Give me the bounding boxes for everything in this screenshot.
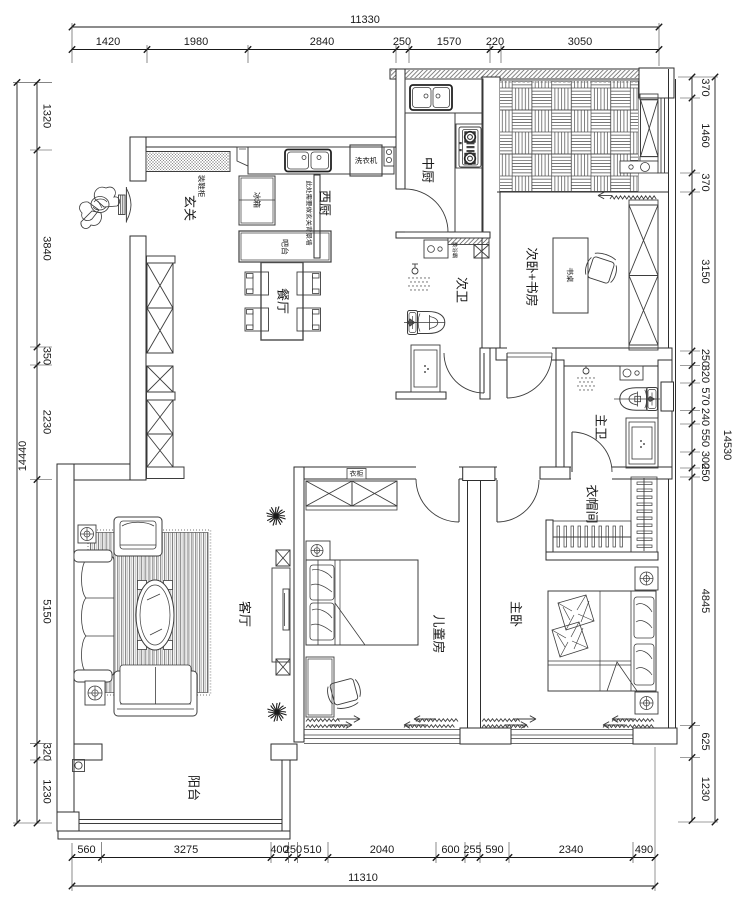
svg-text:14530: 14530 xyxy=(721,430,733,461)
svg-text:590: 590 xyxy=(485,844,503,856)
svg-text:250: 250 xyxy=(284,844,302,856)
svg-text:1980: 1980 xyxy=(184,36,208,48)
svg-text:255: 255 xyxy=(463,844,481,856)
svg-text:370: 370 xyxy=(699,78,711,96)
svg-text:370: 370 xyxy=(699,173,711,191)
svg-text:1460: 1460 xyxy=(699,123,711,147)
svg-text:220: 220 xyxy=(486,36,504,48)
svg-text:14440: 14440 xyxy=(17,441,29,472)
svg-text:1230: 1230 xyxy=(41,779,53,803)
svg-text:3275: 3275 xyxy=(174,844,198,856)
svg-text:1230: 1230 xyxy=(699,777,711,801)
svg-text:320: 320 xyxy=(699,365,711,383)
svg-text:2040: 2040 xyxy=(370,844,394,856)
svg-text:625: 625 xyxy=(699,732,711,750)
svg-text:3050: 3050 xyxy=(568,36,592,48)
svg-text:570: 570 xyxy=(699,387,711,405)
svg-text:4845: 4845 xyxy=(699,589,711,613)
svg-text:250: 250 xyxy=(393,36,411,48)
svg-text:2840: 2840 xyxy=(310,36,334,48)
svg-text:2340: 2340 xyxy=(559,844,583,856)
svg-text:600: 600 xyxy=(441,844,459,856)
svg-text:11310: 11310 xyxy=(348,872,378,884)
svg-text:1420: 1420 xyxy=(96,36,120,48)
svg-text:350: 350 xyxy=(41,347,53,365)
svg-text:320: 320 xyxy=(41,743,53,761)
svg-text:11330: 11330 xyxy=(350,14,380,26)
svg-text:490: 490 xyxy=(635,844,653,856)
svg-text:550: 550 xyxy=(699,429,711,447)
svg-text:3150: 3150 xyxy=(699,259,711,283)
svg-text:5150: 5150 xyxy=(41,599,53,623)
svg-text:510: 510 xyxy=(303,844,321,856)
svg-text:1570: 1570 xyxy=(437,36,461,48)
svg-text:3840: 3840 xyxy=(41,236,53,260)
svg-text:2230: 2230 xyxy=(41,410,53,434)
svg-text:1320: 1320 xyxy=(41,104,53,128)
svg-text:240: 240 xyxy=(699,408,711,426)
svg-text:560: 560 xyxy=(77,844,95,856)
svg-text:250: 250 xyxy=(699,463,711,481)
